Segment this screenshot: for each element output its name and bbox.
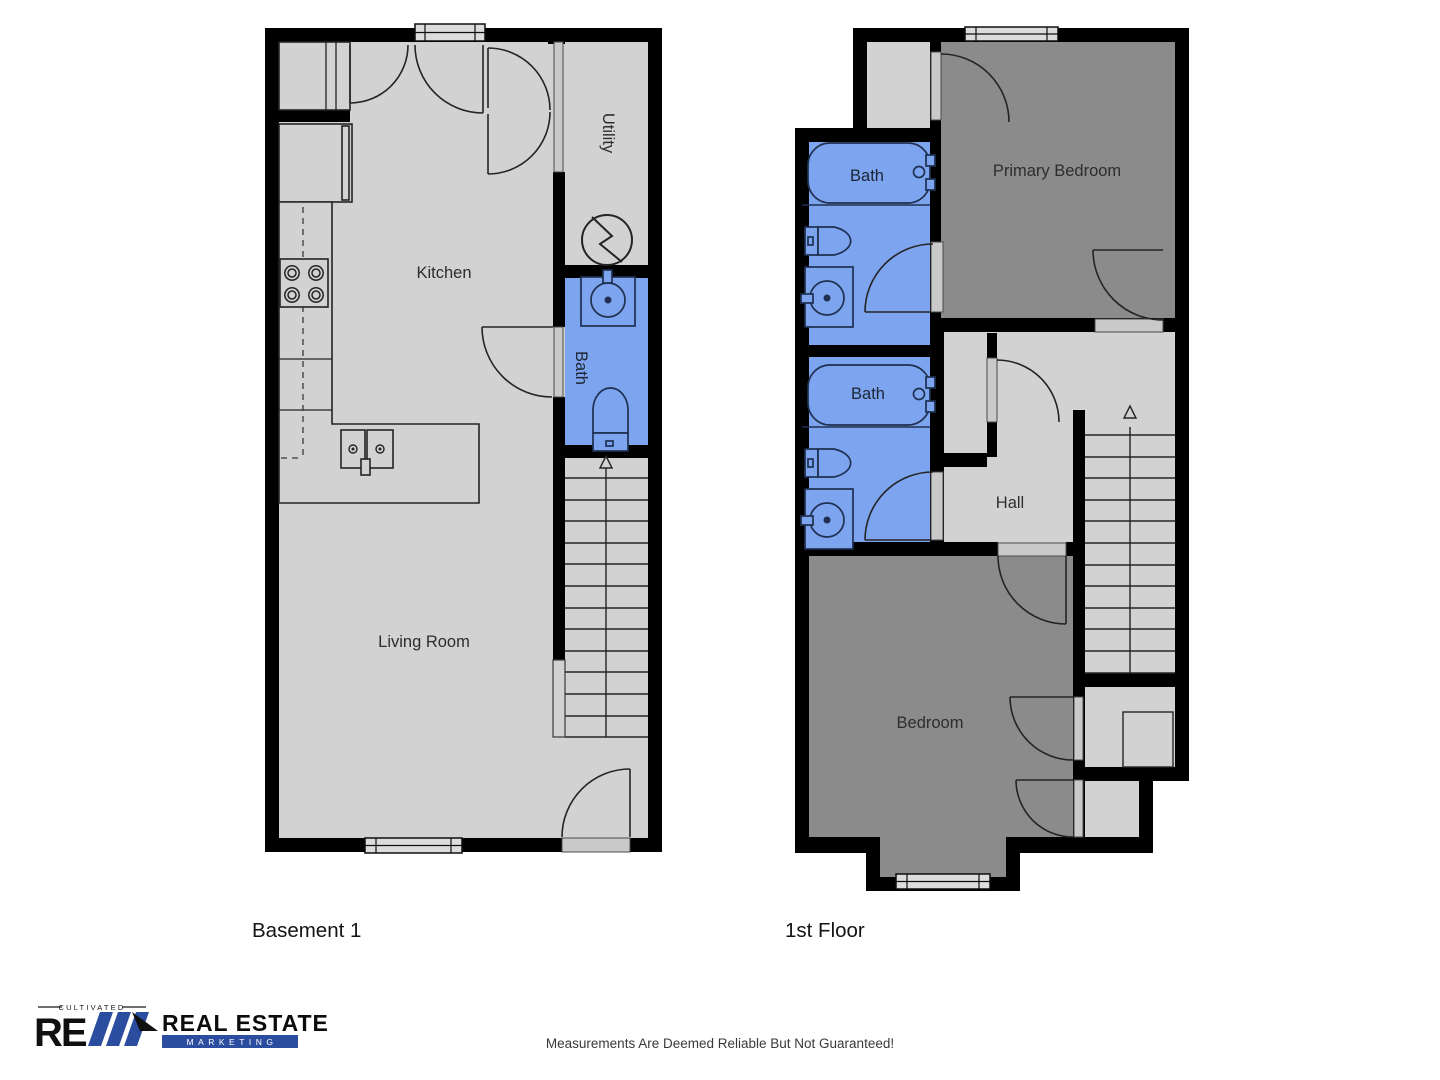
stairs-railing <box>553 660 565 737</box>
primary-exit-door-threshold <box>1095 319 1163 332</box>
bedroom-bay-floor <box>880 837 1006 877</box>
living-room-label: Living Room <box>378 633 470 651</box>
logo-name-line2: MARKETING <box>186 1037 277 1047</box>
refrigerator-handle <box>342 126 349 200</box>
bedroom-label: Bedroom <box>897 714 964 732</box>
hall-label: Hall <box>996 494 1024 512</box>
closet2-floor <box>1085 781 1139 837</box>
basement-floor-plan: Kitchen Living Room Utility Bath <box>265 24 662 853</box>
floor-plan-canvas: Kitchen Living Room Utility Bath <box>0 0 1440 1080</box>
first-floor-title: 1st Floor <box>785 919 865 942</box>
bath-lower-label: Bath <box>851 385 885 403</box>
basement-title: Basement 1 <box>252 919 361 942</box>
first-floor-plan: Primary Bedroom Bath Bath Hall Bedroom <box>795 27 1189 891</box>
basement-bath-door-opening <box>554 327 563 397</box>
primary-bedroom-door-leaf <box>931 52 941 120</box>
island-faucet <box>361 459 370 475</box>
disclaimer-text: Measurements Are Deemed Reliable But Not… <box>546 1036 894 1051</box>
hall-bedroom-door-threshold <box>998 543 1066 556</box>
bath-upper-door-opening <box>931 242 943 312</box>
toilet-bowl <box>818 227 851 255</box>
toilet-button <box>808 237 813 245</box>
entry-closet-floor <box>867 42 930 128</box>
bedroom-closet1-door-leaf <box>1074 697 1083 760</box>
refrigerator <box>279 124 352 202</box>
primary-bedroom-label: Primary Bedroom <box>993 162 1121 180</box>
primary-bedroom-floor <box>941 42 1175 318</box>
utility-door-opening <box>554 42 563 172</box>
bath-sink-faucet <box>603 270 612 283</box>
toilet-bowl <box>593 388 628 433</box>
kitchen-label: Kitchen <box>416 264 471 282</box>
toilet-button <box>606 441 613 446</box>
bath-sink-faucet <box>801 294 813 303</box>
company-logo: CULTIVATED RE REAL ESTATE MARKETING <box>34 1003 329 1055</box>
closet-shelf <box>1123 712 1173 767</box>
basement-entry-door-threshold <box>562 838 630 852</box>
bath-lower-door-opening <box>931 472 943 540</box>
hall-closet-door-leaf <box>987 358 997 422</box>
tub-faucet-bracket <box>926 179 935 190</box>
bedroom-closet2-door-leaf <box>1074 780 1083 837</box>
basement-bath-label: Bath <box>572 351 590 385</box>
floor-plan-page: Kitchen Living Room Utility Bath <box>0 0 1440 1080</box>
logo-mark-letters: RE <box>34 1011 87 1055</box>
bath-upper-label: Bath <box>850 167 884 185</box>
kitchen-closet <box>279 42 350 110</box>
tub-faucet-bracket <box>926 155 935 166</box>
utility-label: Utility <box>599 113 617 154</box>
logo-mark-stripes <box>88 1012 158 1046</box>
logo-name-line1: REAL ESTATE <box>162 1010 329 1036</box>
